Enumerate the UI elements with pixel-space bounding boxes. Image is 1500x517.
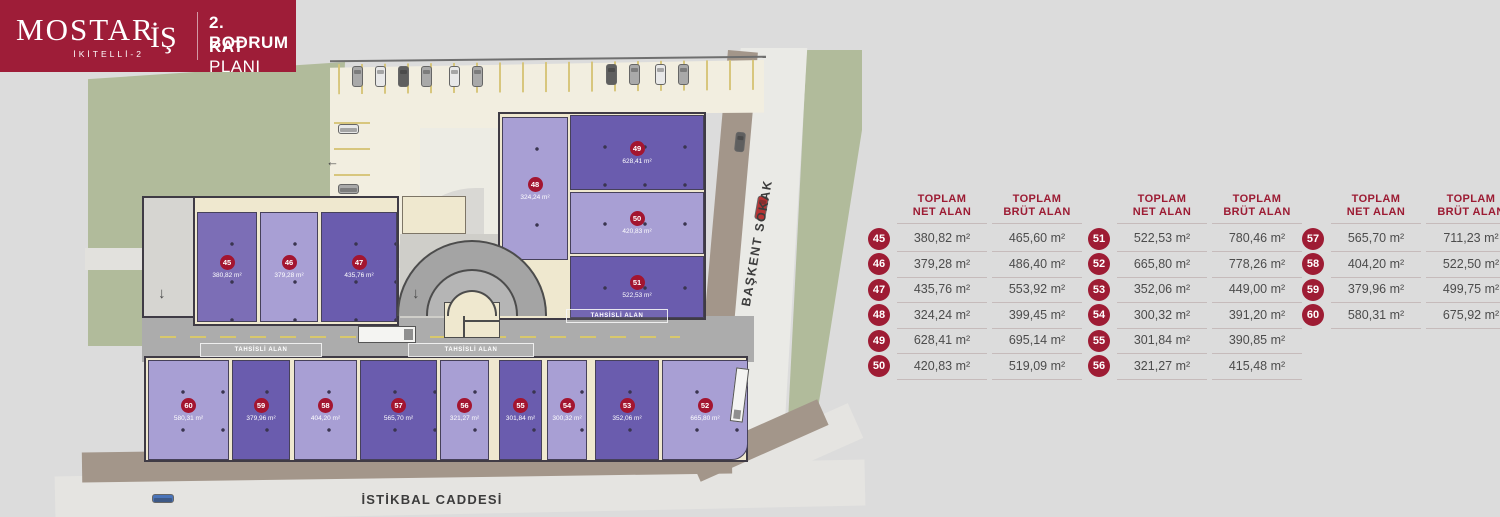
unit-47[interactable]: 47 435,76 m² bbox=[321, 212, 397, 322]
car-icon bbox=[678, 64, 689, 85]
unit-number-badge: 54 bbox=[560, 398, 575, 413]
table-row: 45 380,82 m² 465,60 m² bbox=[866, 226, 1082, 252]
car-icon bbox=[375, 66, 386, 87]
column-header-net: TOPLAMNET ALAN bbox=[897, 193, 987, 224]
unit-number-badge: 60 bbox=[181, 398, 196, 413]
unit-number-badge: 51 bbox=[630, 275, 645, 290]
unit-area-label: 420,83 m² bbox=[622, 228, 651, 235]
unit-number-badge: 49 bbox=[630, 141, 645, 156]
unit-number-badge: 46 bbox=[868, 253, 890, 275]
page-title-line2-strong: KAT bbox=[209, 37, 244, 56]
car-icon bbox=[629, 64, 640, 85]
unit-number-badge: 45 bbox=[868, 228, 890, 250]
unit-area-label: 435,76 m² bbox=[344, 272, 373, 279]
unit-46[interactable]: 46 379,28 m² bbox=[260, 212, 318, 322]
unit-number-badge: 49 bbox=[868, 330, 890, 352]
unit-number-badge: 60 bbox=[1302, 304, 1324, 326]
unit-56[interactable]: 56 321,27 m² bbox=[440, 360, 489, 460]
unit-number-badge: 46 bbox=[282, 255, 297, 270]
unit-48[interactable]: 48 324,24 m² bbox=[502, 117, 568, 260]
net-area-value: 628,41 m² bbox=[897, 328, 987, 355]
unit-area-label: 628,41 m² bbox=[622, 158, 651, 165]
unit-area-label: 324,24 m² bbox=[520, 194, 549, 201]
unit-60[interactable]: 60 580,31 m² bbox=[148, 360, 229, 460]
car-icon bbox=[398, 66, 409, 87]
table-row: 55 301,84 m² 390,85 m² bbox=[1086, 328, 1302, 354]
arrow-left-icon: ← bbox=[326, 154, 339, 169]
allocated-zone-label: TAHSİSLİ ALAN bbox=[408, 343, 534, 357]
site-plan: 45 380,82 m² 46 379,28 m² 47 435,76 m² 4… bbox=[0, 0, 870, 517]
truck-icon bbox=[358, 326, 416, 343]
table-row: 60 580,31 m² 675,92 m² bbox=[1300, 303, 1500, 329]
unit-area-label: 352,06 m² bbox=[612, 415, 641, 422]
unit-area-label: 300,32 m² bbox=[552, 415, 581, 422]
car-icon bbox=[655, 64, 666, 85]
unit-number-badge: 53 bbox=[620, 398, 635, 413]
unit-54[interactable]: 54 300,32 m² bbox=[547, 360, 587, 460]
unit-53[interactable]: 53 352,06 m² bbox=[595, 360, 659, 460]
brut-area-value: 519,09 m² bbox=[992, 353, 1082, 380]
page-title-line2-rest: PLANI bbox=[209, 57, 261, 76]
unit-number-badge: 57 bbox=[391, 398, 406, 413]
unit-57[interactable]: 57 565,70 m² bbox=[360, 360, 437, 460]
floor-plan-page: 45 380,82 m² 46 379,28 m² 47 435,76 m² 4… bbox=[0, 0, 1500, 517]
building-left-wing bbox=[142, 196, 194, 318]
unit-number-badge: 58 bbox=[318, 398, 333, 413]
unit-area-label: 301,84 m² bbox=[506, 415, 535, 422]
unit-number-badge: 56 bbox=[457, 398, 472, 413]
net-area-value: 301,84 m² bbox=[1117, 328, 1207, 355]
net-area-value: 404,20 m² bbox=[1331, 251, 1421, 278]
net-area-value: 352,06 m² bbox=[1117, 277, 1207, 304]
unit-59[interactable]: 59 379,96 m² bbox=[232, 360, 290, 460]
net-area-value: 420,83 m² bbox=[897, 353, 987, 380]
net-area-value: 324,24 m² bbox=[897, 302, 987, 329]
brut-area-value: 695,14 m² bbox=[992, 328, 1082, 355]
unit-number-badge: 47 bbox=[868, 279, 890, 301]
unit-number-badge: 47 bbox=[352, 255, 367, 270]
brut-area-value: 711,23 m² bbox=[1426, 226, 1500, 253]
brand-header: MOSTAR İKİTELLİ-2 İŞ 2. BODRUM KAT PLANI bbox=[0, 0, 296, 72]
table-row: 47 435,76 m² 553,92 m² bbox=[866, 277, 1082, 303]
table-row: 51 522,53 m² 780,46 m² bbox=[1086, 226, 1302, 252]
arrow-down-icon: ↓ bbox=[412, 285, 420, 302]
car-icon bbox=[338, 124, 359, 134]
unit-area-label: 580,31 m² bbox=[174, 415, 203, 422]
unit-area-label: 379,96 m² bbox=[246, 415, 275, 422]
unit-number-badge: 55 bbox=[513, 398, 528, 413]
brut-area-value: 499,75 m² bbox=[1426, 277, 1500, 304]
table-row: 59 379,96 m² 499,75 m² bbox=[1300, 277, 1500, 303]
unit-area-label: 565,70 m² bbox=[384, 415, 413, 422]
net-area-value: 379,28 m² bbox=[897, 251, 987, 278]
brut-area-value: 391,20 m² bbox=[1212, 302, 1302, 329]
building-block-middle: 45 380,82 m² 46 379,28 m² 47 435,76 m² bbox=[193, 196, 399, 326]
divider bbox=[197, 12, 198, 60]
car-icon bbox=[734, 132, 746, 153]
area-table-51-56: TOPLAMNET ALAN TOPLAMBRÜT ALAN 51 522,53… bbox=[1086, 193, 1302, 379]
table-row: 54 300,32 m² 391,20 m² bbox=[1086, 303, 1302, 329]
brut-area-value: 449,00 m² bbox=[1212, 277, 1302, 304]
unit-area-label: 380,82 m² bbox=[212, 272, 241, 279]
net-area-value: 300,32 m² bbox=[1117, 302, 1207, 329]
unit-number-badge: 59 bbox=[254, 398, 269, 413]
allocated-zone-label: TAHSİSLİ ALAN bbox=[566, 309, 668, 323]
unit-number-badge: 50 bbox=[630, 211, 645, 226]
brand-suffix: İŞ bbox=[150, 21, 177, 55]
column-header-brut: TOPLAMBRÜT ALAN bbox=[1212, 193, 1302, 224]
table-row: 52 665,80 m² 778,26 m² bbox=[1086, 252, 1302, 278]
net-area-value: 435,76 m² bbox=[897, 277, 987, 304]
brand-subname: İKİTELLİ-2 bbox=[16, 49, 144, 59]
brut-area-value: 675,92 m² bbox=[1426, 302, 1500, 329]
brut-area-value: 465,60 m² bbox=[992, 226, 1082, 253]
car-icon bbox=[352, 66, 363, 87]
column-header-net: TOPLAMNET ALAN bbox=[1117, 193, 1207, 224]
unit-number-badge: 58 bbox=[1302, 253, 1324, 275]
unit-area-label: 379,28 m² bbox=[274, 272, 303, 279]
column-header-brut: TOPLAMBRÜT ALAN bbox=[992, 193, 1082, 224]
green-area-left bbox=[88, 270, 146, 346]
unit-49[interactable]: 49 628,41 m² bbox=[570, 115, 704, 190]
unit-45[interactable]: 45 380,82 m² bbox=[197, 212, 257, 322]
brut-area-value: 390,85 m² bbox=[1212, 328, 1302, 355]
unit-area-label: 321,27 m² bbox=[450, 415, 479, 422]
net-area-value: 565,70 m² bbox=[1331, 226, 1421, 253]
unit-number-badge: 51 bbox=[1088, 228, 1110, 250]
column-header-brut: TOPLAMBRÜT ALAN bbox=[1426, 193, 1500, 224]
unit-number-badge: 57 bbox=[1302, 228, 1324, 250]
service-rooms bbox=[402, 196, 466, 234]
unit-area-label: 404,20 m² bbox=[311, 415, 340, 422]
brut-area-value: 778,26 m² bbox=[1212, 251, 1302, 278]
car-icon bbox=[338, 184, 359, 194]
car-icon bbox=[449, 66, 460, 87]
street-label-istikbal-caddesi: İSTİKBAL CADDESİ bbox=[347, 492, 517, 507]
area-table-57-60: TOPLAMNET ALAN TOPLAMBRÜT ALAN 57 565,70… bbox=[1300, 193, 1500, 328]
arrow-down-icon: ↓ bbox=[158, 285, 166, 302]
unit-55[interactable]: 55 301,84 m² bbox=[499, 360, 542, 460]
net-area-value: 379,96 m² bbox=[1331, 277, 1421, 304]
table-row: 50 420,83 m² 519,09 m² bbox=[866, 354, 1082, 380]
table-row: 56 321,27 m² 415,48 m² bbox=[1086, 354, 1302, 380]
unit-50[interactable]: 50 420,83 m² bbox=[570, 192, 704, 254]
allocated-zone-label: TAHSİSLİ ALAN bbox=[200, 343, 322, 357]
unit-number-badge: 56 bbox=[1088, 355, 1110, 377]
table-row: 49 628,41 m² 695,14 m² bbox=[866, 328, 1082, 354]
road-centerline bbox=[160, 336, 680, 338]
net-area-value: 665,80 m² bbox=[1117, 251, 1207, 278]
column-header-net: TOPLAMNET ALAN bbox=[1331, 193, 1421, 224]
unit-number-badge: 52 bbox=[698, 398, 713, 413]
net-area-value: 321,27 m² bbox=[1117, 353, 1207, 380]
brut-area-value: 522,50 m² bbox=[1426, 251, 1500, 278]
table-row: 58 404,20 m² 522,50 m² bbox=[1300, 252, 1500, 278]
net-area-value: 380,82 m² bbox=[897, 226, 987, 253]
unit-number-badge: 50 bbox=[868, 355, 890, 377]
net-area-value: 522,53 m² bbox=[1117, 226, 1207, 253]
brand-name: MOSTAR bbox=[16, 12, 155, 48]
unit-number-badge: 52 bbox=[1088, 253, 1110, 275]
unit-number-badge: 59 bbox=[1302, 279, 1324, 301]
brut-area-value: 553,92 m² bbox=[992, 277, 1082, 304]
unit-number-badge: 53 bbox=[1088, 279, 1110, 301]
unit-number-badge: 55 bbox=[1088, 330, 1110, 352]
unit-number-badge: 48 bbox=[868, 304, 890, 326]
unit-number-badge: 54 bbox=[1088, 304, 1110, 326]
page-title-line2: KAT PLANI bbox=[209, 37, 296, 77]
car-icon bbox=[472, 66, 483, 87]
table-row: 57 565,70 m² 711,23 m² bbox=[1300, 226, 1500, 252]
area-table-45-50: TOPLAMNET ALAN TOPLAMBRÜT ALAN 45 380,82… bbox=[866, 193, 1082, 379]
unit-number-badge: 48 bbox=[528, 177, 543, 192]
brut-area-value: 780,46 m² bbox=[1212, 226, 1302, 253]
table-row: 48 324,24 m² 399,45 m² bbox=[866, 303, 1082, 329]
car-icon bbox=[606, 64, 617, 85]
brut-area-value: 415,48 m² bbox=[1212, 353, 1302, 380]
unit-area-label: 665,80 m² bbox=[690, 415, 719, 422]
table-row: 46 379,28 m² 486,40 m² bbox=[866, 252, 1082, 278]
brut-area-value: 486,40 m² bbox=[992, 251, 1082, 278]
unit-area-label: 522,53 m² bbox=[622, 292, 651, 299]
brut-area-value: 399,45 m² bbox=[992, 302, 1082, 329]
table-row: 53 352,06 m² 449,00 m² bbox=[1086, 277, 1302, 303]
net-area-value: 580,31 m² bbox=[1331, 302, 1421, 329]
building-block-bottom: 60 580,31 m² 59 379,96 m² 58 404,20 m² 5… bbox=[144, 356, 748, 462]
unit-number-badge: 45 bbox=[220, 255, 235, 270]
unit-58[interactable]: 58 404,20 m² bbox=[294, 360, 357, 460]
car-icon bbox=[421, 66, 432, 87]
car-icon bbox=[152, 494, 174, 503]
